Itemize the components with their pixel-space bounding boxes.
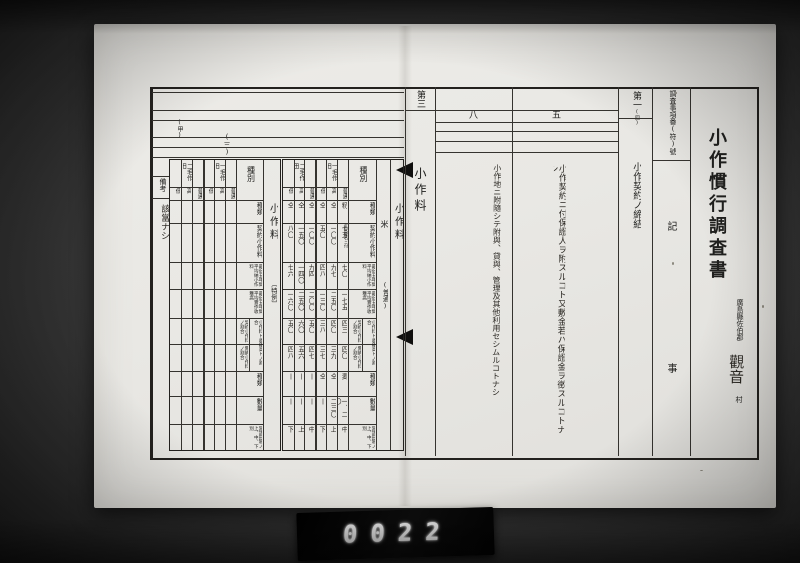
special-table-section-label: 小作料: [266, 203, 278, 273]
main-table-cell-value: 四三: [338, 320, 347, 343]
grid-line: [170, 396, 263, 397]
grid-line: [652, 160, 690, 161]
main-table-cell-value: 七〇: [338, 264, 347, 288]
main-table-kind-header: 種別: [357, 166, 367, 198]
main-table-cell-value: 八〇: [284, 225, 293, 261]
grid-line: [170, 318, 263, 319]
main-table-cell-value: 九四: [305, 264, 314, 288]
grid-line: [170, 424, 263, 425]
grid-line: [152, 176, 170, 177]
item3-number: 第三: [412, 90, 424, 110]
special-table-kind-header: 種別: [245, 166, 255, 198]
grid-line: [170, 289, 263, 290]
special-table-row-label: 實納小作料ノ割合: [237, 346, 248, 370]
grid-line: [283, 223, 376, 224]
grid-line: [435, 131, 618, 132]
main-table-cell-value: 五六: [295, 346, 304, 370]
grid-line: [225, 160, 226, 450]
main-table-cell-value: 上: [295, 426, 304, 449]
main-table-row-label: 契約小作料: [349, 225, 375, 261]
counter-plaque: 0022: [296, 507, 494, 561]
grid-line: [152, 147, 404, 148]
special-table-subcol-header: 普通: [227, 188, 235, 200]
special-table-row-label: 契約小作料: [237, 225, 262, 261]
main-table-cell-value: 一七五: [338, 291, 347, 317]
main-table-cell-value: 五〇: [305, 320, 314, 343]
grid-line: [405, 110, 435, 111]
special-table-row-label: 種類: [237, 373, 262, 395]
special-table-row-label: 種類: [237, 202, 262, 222]
grid-line: [512, 87, 513, 456]
main-table-cell-value: 仝: [305, 202, 314, 222]
grid-line: [263, 160, 264, 450]
grid-line: [435, 110, 618, 111]
special-table-row-label: 契約小作料ノ割合: [237, 320, 248, 343]
main-table-cell-value: 一五〇: [295, 225, 304, 261]
main-table-cell-value: 二五〇: [295, 291, 304, 317]
main-table-row-label: 最近五年間平均實作收穫高: [349, 291, 375, 317]
grid-line: [652, 87, 653, 456]
main-table-group-header: 一毛作田: [328, 163, 337, 186]
photo-stage: 小作慣行調査書 廣島縣佐伯郡 觀音 村 調査事項番(符)號 記 事 第一 (四)…: [0, 0, 800, 563]
special-table-subcol-header: 低: [205, 188, 213, 200]
margin-mark-three: (三): [219, 133, 230, 153]
main-table-cell-value: 四八: [284, 346, 293, 370]
grid-line: [181, 160, 182, 450]
main-table-row-label: 數量: [349, 398, 375, 423]
main-table-cell-value: 丨: [316, 398, 325, 423]
grid-line: [170, 262, 263, 263]
main-table-subcol-header: 高: [295, 188, 303, 200]
main-table-cell-value: 三七: [316, 346, 325, 370]
special-table-subcol-header: 高: [216, 188, 224, 200]
main-table-cell-value: 仝: [316, 202, 325, 222]
main-table-cell-value: 三八: [316, 320, 325, 343]
entry-header-bottom: 事: [662, 363, 675, 377]
grid-line: [435, 141, 618, 142]
main-table-cell-value: 四〇: [327, 320, 336, 343]
main-table-cell-value: 一、二〇: [338, 398, 347, 423]
item5-entry-handwritten: 小作契約ニ付保證人ヲ附スルコト又敷金若ハ保證金ヲ徴スルコトナシ: [552, 164, 566, 434]
grid-line: [690, 87, 691, 456]
grid-line: [283, 262, 376, 263]
main-table-cell-value: 六〇: [295, 320, 304, 343]
main-table-cell-value: 中: [305, 426, 314, 449]
paper-speck: [672, 262, 674, 265]
main-table-cell-value: 仝: [316, 373, 325, 395]
main-table-cell-value: 一〇〇: [327, 225, 336, 261]
main-table-section-label: 小作料: [391, 203, 403, 273]
special-table-row-label: 最近五年間平均納小作料: [237, 264, 262, 288]
special-table-row-label: 最近五年間平均實作收穫高: [237, 291, 262, 317]
main-table-cell-value: 丨: [284, 398, 293, 423]
grid-line: [152, 198, 170, 199]
main-table-cell-value: 七六: [284, 264, 293, 288]
main-table-cell-value: 一四〇: [295, 264, 304, 288]
grid-line: [170, 223, 263, 224]
main-table-cell-value: 丨: [305, 373, 314, 395]
main-table-subcol-header: 高: [328, 188, 336, 200]
grid-line: [152, 92, 404, 93]
special-table-group-header: 二毛作田: [183, 163, 192, 186]
item1-number: 第一: [628, 91, 640, 111]
grid-line: [170, 371, 263, 372]
special-table-subcol-header: 低: [172, 188, 180, 200]
main-table-cell-value: 丨: [305, 398, 314, 423]
survey-item-number-header: 調査事項番(符)號: [664, 90, 676, 158]
main-table-row-label: 當該田地ノ上、中、下別: [349, 426, 375, 449]
grid-line: [376, 160, 377, 450]
grid-line: [618, 118, 652, 119]
village-suffix: 村: [733, 396, 742, 406]
main-table-cell-value: 丨: [295, 398, 304, 423]
paper-speck: [675, 92, 677, 94]
grid-line: [283, 318, 376, 319]
remarks-value-handwritten: 該當ナシ: [155, 204, 169, 254]
main-table-subcol-header: 低: [285, 188, 293, 200]
main-table-cell-value: 仝: [327, 373, 336, 395]
item5-number: 五: [547, 110, 559, 122]
village-name-handwritten: 觀音: [724, 354, 744, 396]
main-table-ratio-group-label: 小作料ト收穫高トノ割合: [363, 320, 375, 369]
main-table-cell-value: 三九: [327, 346, 336, 370]
special-table-ratio-group-label: 小作料ト收穫高トノ割合: [250, 320, 262, 369]
grid-line: [435, 152, 618, 153]
grid-line: [283, 371, 376, 372]
grid-line: [203, 160, 205, 450]
main-table-cell-value: 四七: [305, 346, 314, 370]
main-table-crop-note: (普通): [378, 281, 388, 315]
grid-line: [152, 110, 404, 111]
item1-number-sub: (四): [630, 109, 639, 118]
special-table-subcol-header: 普通: [194, 188, 202, 200]
main-table-cell-value: 下: [284, 426, 293, 449]
main-table-cell-value: 一六〇: [284, 291, 293, 317]
item3-entry: 小作料: [412, 167, 426, 231]
special-table-crop-note: 〔特例〕: [267, 281, 277, 319]
main-table-group-header: 二毛作田: [295, 163, 304, 186]
main-table-subcol-header: 低: [317, 188, 325, 200]
main-table-cell-value: 九七: [327, 264, 336, 288]
item8-number: 八: [464, 110, 476, 122]
main-table-subcol-header: 普通: [306, 188, 314, 200]
main-table-cell-value: 仝: [295, 202, 304, 222]
grid-line: [152, 120, 404, 121]
grid-line: [283, 424, 376, 425]
grid-line: [152, 157, 404, 158]
grid-line: [170, 200, 263, 201]
grid-line: [435, 87, 436, 456]
main-table-row-label: 種類: [349, 202, 375, 222]
main-table-cell-value: 仝: [284, 202, 293, 222]
grid-line: [618, 87, 619, 456]
main-table-cell-value: 一〇〇: [305, 225, 314, 261]
main-table-crop-label: 米: [378, 220, 388, 242]
main-table-cell-value: 二五〇: [327, 291, 336, 317]
main-table-cell-value: 五〇: [284, 320, 293, 343]
grid-line: [435, 122, 618, 123]
main-table-cell-value: 四〇: [338, 346, 347, 370]
main-table-cell-value: 一三〇: [316, 291, 325, 317]
paper-speck: [762, 305, 764, 308]
main-table-row-label: 最近五年間平均納小作料: [349, 264, 375, 288]
special-table-row-label: 當該田地ノ上、中、下別: [237, 426, 262, 449]
special-table-row-label: 數量: [237, 398, 262, 423]
remarks-label: 備考: [156, 178, 166, 196]
main-table-row-label: 種類: [349, 373, 375, 395]
main-table-cell-value: 籾: [338, 202, 347, 222]
main-table-cell-value: 丨: [295, 373, 304, 395]
item8-entry-handwritten: 小作地ニ附隨シテ附與、貸與、管理及其他利用セシムルコトナシ: [488, 164, 501, 446]
main-table-cell-value: 下: [316, 426, 325, 449]
main-table-cell-value: 四八: [316, 264, 325, 288]
main-table-cell-note: 玄米壹石ニ付: [343, 224, 348, 256]
main-table-cell-value: 麦: [338, 373, 347, 395]
main-table-cell-value: 五〇: [316, 225, 325, 261]
main-table-cell-value: 二〇〇: [305, 291, 314, 317]
counter-display: 0022: [342, 517, 453, 549]
grid-line: [283, 200, 376, 201]
grid-line: [152, 137, 404, 138]
main-table-subcol-header: 普通: [339, 188, 347, 200]
main-table-cell-value: 丨: [284, 373, 293, 395]
main-table-cell-value: 二三〇: [327, 398, 336, 423]
main-table-cell-value: 中: [338, 426, 347, 449]
issuer-prefecture-county: 廣島縣佐伯郡: [731, 299, 743, 354]
main-table-row-label: 契約小作料ノ割合: [349, 320, 361, 343]
main-table-row-label: 實納小作料ノ割合: [349, 346, 361, 370]
main-table-cell-value: 上: [327, 426, 336, 449]
document-title: 小作慣行調査書: [703, 128, 725, 298]
special-table-subcol-header: 高: [183, 188, 191, 200]
grid-line: [405, 87, 406, 456]
grid-line: [214, 160, 215, 450]
paper-speck: [700, 470, 703, 471]
item1-entry: 小作契約ノ締結: [629, 162, 641, 244]
grid-line: [283, 396, 376, 397]
margin-mark-kou: (甲): [172, 119, 182, 135]
grid-line: [192, 160, 193, 450]
main-table-cell-value: 仝: [327, 202, 336, 222]
special-table-group-header: 一毛作田: [216, 163, 225, 186]
grid-line: [283, 289, 376, 290]
entry-header-top: 記: [662, 221, 675, 235]
